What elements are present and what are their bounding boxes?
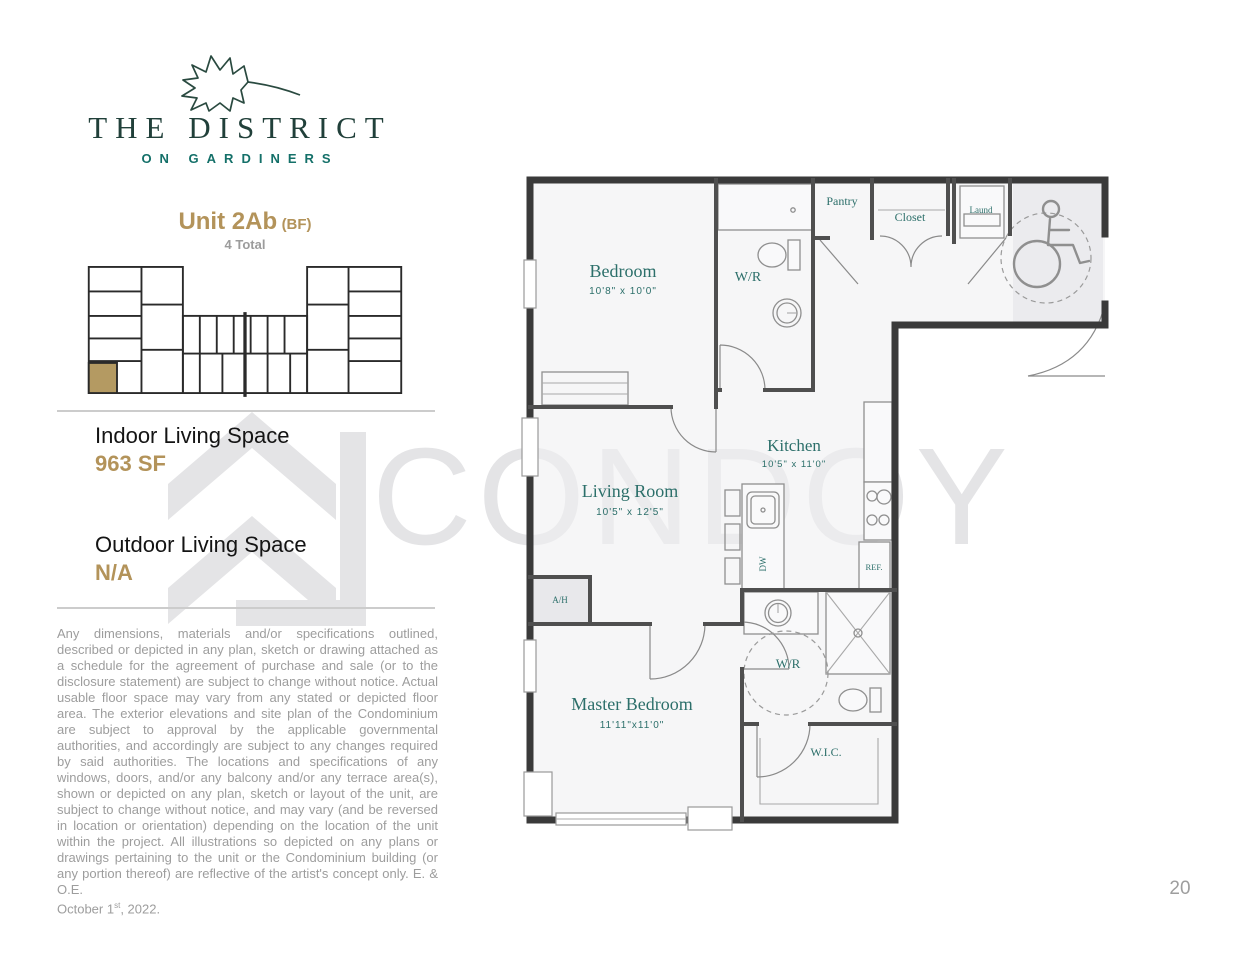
kitchen-island [742, 484, 784, 592]
toilet-icon [839, 689, 867, 711]
master-bedroom-label: Master Bedroom [571, 694, 692, 714]
unit-name: Unit 2Ab [178, 208, 277, 235]
divider [57, 410, 435, 412]
unit-count: 4 Total [0, 237, 490, 252]
laundry-label: Laund [970, 205, 993, 215]
ensuite-label: W/R [776, 656, 801, 671]
oak-leaf-logo-icon [178, 48, 308, 112]
disclaimer-body: Any dimensions, materials and/or specifi… [57, 626, 438, 897]
fridge-label: REF. [865, 562, 882, 572]
indoor-space-value: 963 SF [95, 451, 166, 477]
divider [57, 607, 435, 609]
brand-name: THE DISTRICT [0, 110, 480, 146]
living-room-label: Living Room [582, 481, 679, 501]
page-number: 20 [1150, 878, 1210, 900]
wic-label: W.I.C. [810, 745, 841, 759]
unit-title: Unit 2Ab (BF) [0, 208, 490, 236]
bedroom-label: Bedroom [590, 261, 657, 281]
kitchen-label: Kitchen [767, 436, 821, 455]
floorplan-svg: Bedroom 10'8" x 10'0" W/R Pantry Closet … [520, 172, 1110, 840]
page: CONDOY THE DISTRICT ON GARDINERS Unit 2A… [0, 0, 1244, 961]
outdoor-space-label: Outdoor Living Space [95, 532, 307, 558]
master-bedroom-dims: 11'11"x11'0" [600, 720, 665, 731]
unit-suffix: (BF) [282, 216, 312, 233]
outdoor-space-value: N/A [95, 560, 133, 586]
ah-label: A/H [552, 595, 568, 605]
disclaimer-date: October 1st, 2022. [57, 898, 438, 917]
building-key-plan [85, 263, 405, 397]
bath-label: W/R [735, 270, 762, 285]
kitchen-dims: 10'5" x 11'0" [762, 459, 826, 470]
closet-label: Closet [895, 210, 926, 224]
highlighted-unit [89, 363, 117, 393]
dishwasher-label: DW [758, 556, 768, 571]
living-room-dims: 10'5" x 12'5" [596, 507, 664, 518]
legal-disclaimer: Any dimensions, materials and/or specifi… [57, 626, 438, 917]
pantry-label: Pantry [826, 194, 857, 208]
brand-subtitle: ON GARDINERS [0, 151, 480, 166]
indoor-space-label: Indoor Living Space [95, 423, 289, 449]
bedroom-dims: 10'8" x 10'0" [589, 286, 657, 297]
date-prefix: October 1 [57, 901, 114, 916]
date-suffix: , 2022. [120, 901, 160, 916]
